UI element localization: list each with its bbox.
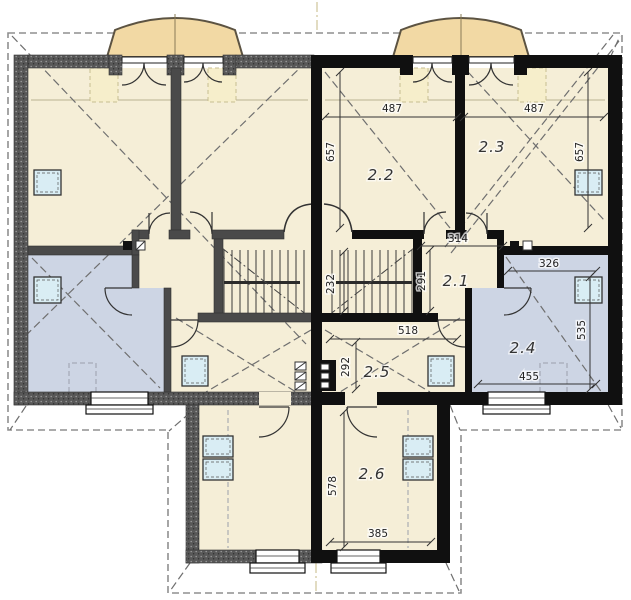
dim-room24-bottom-width: 455 <box>519 371 539 383</box>
window-left-bath-bottom <box>86 392 153 414</box>
window-24-bottom <box>483 392 550 414</box>
dim-stair-run: 232 <box>325 274 337 294</box>
floor-plan-canvas: 487 487 657 657 314 291 232 326 535 455 … <box>0 0 631 600</box>
dim-room22-width: 487 <box>382 103 402 115</box>
room-label-2-2: 2.2 <box>368 166 395 184</box>
dim-room22-depth: 657 <box>325 142 337 162</box>
window-26-right <box>331 550 386 573</box>
roof-window <box>203 436 233 457</box>
roof-window <box>34 170 61 195</box>
room-label-2-1: 2.1 <box>443 272 470 290</box>
roof-window <box>182 356 208 386</box>
room-label-2-5: 2.5 <box>364 363 391 381</box>
room-label-2-6: 2.6 <box>359 465 386 483</box>
room-label-2-4: 2.4 <box>510 339 537 357</box>
roof-window <box>403 436 433 457</box>
dim-room24-top-width: 326 <box>539 258 559 270</box>
dim-room24-depth: 535 <box>576 320 588 340</box>
dim-hall-depth: 291 <box>416 271 428 291</box>
roof-window <box>34 277 61 303</box>
room-2-4-vestibule <box>472 288 504 392</box>
roof-window <box>403 459 433 480</box>
room-label-2-3: 2.3 <box>479 138 506 156</box>
window-26-left <box>250 550 305 573</box>
roof-window <box>575 277 602 303</box>
door-gap-right-26 <box>345 392 377 405</box>
roof-window <box>203 459 233 480</box>
door-gap-left-26 <box>259 392 291 405</box>
dim-room23-depth: 657 <box>574 142 586 162</box>
dim-room26-depth: 578 <box>327 476 339 496</box>
dim-room25-depth: 292 <box>340 357 352 377</box>
room-left-bath <box>28 255 132 392</box>
roof-window <box>428 356 454 386</box>
dim-room25-width: 518 <box>398 325 418 337</box>
room-left-bath-vestibule <box>132 288 164 392</box>
dim-room26-width: 385 <box>368 528 388 540</box>
dim-room23-width: 487 <box>524 103 544 115</box>
floor-plan-svg: 487 487 657 657 314 291 232 326 535 455 … <box>0 0 631 600</box>
dim-hall-width: 314 <box>448 233 468 245</box>
